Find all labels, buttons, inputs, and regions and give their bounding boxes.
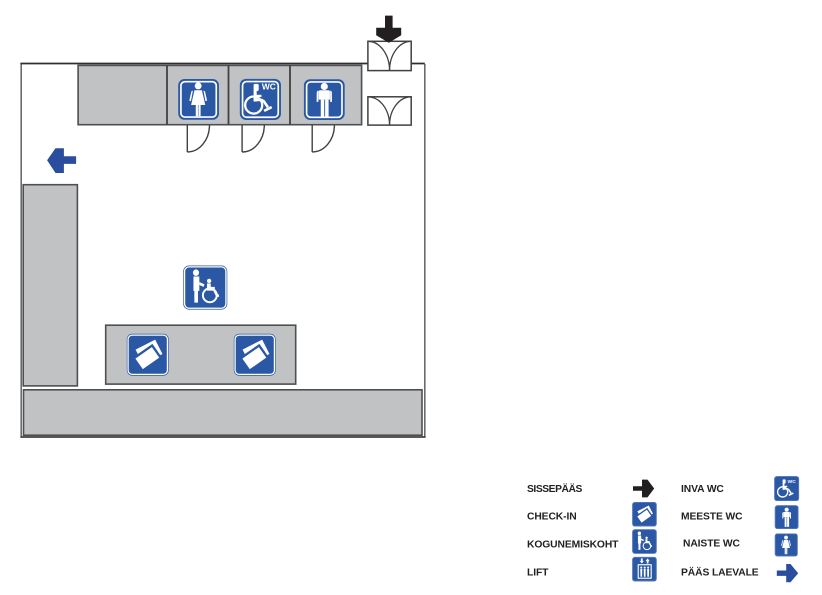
svg-text:PÄÄS LAEVALE: PÄÄS LAEVALE	[681, 565, 759, 578]
svg-text:INVA WC: INVA WC	[681, 484, 724, 495]
svg-text:KOGUNEMISKOHT: KOGUNEMISKOHT	[527, 539, 619, 550]
svg-text:LIFT: LIFT	[527, 567, 549, 578]
svg-text:MEESTE WC: MEESTE WC	[681, 512, 743, 523]
svg-text:NAISTE WC: NAISTE WC	[683, 539, 741, 550]
svg-text:CHECK-IN: CHECK-IN	[527, 512, 577, 523]
svg-text:SISSEPÄÄS: SISSEPÄÄS	[527, 482, 582, 495]
